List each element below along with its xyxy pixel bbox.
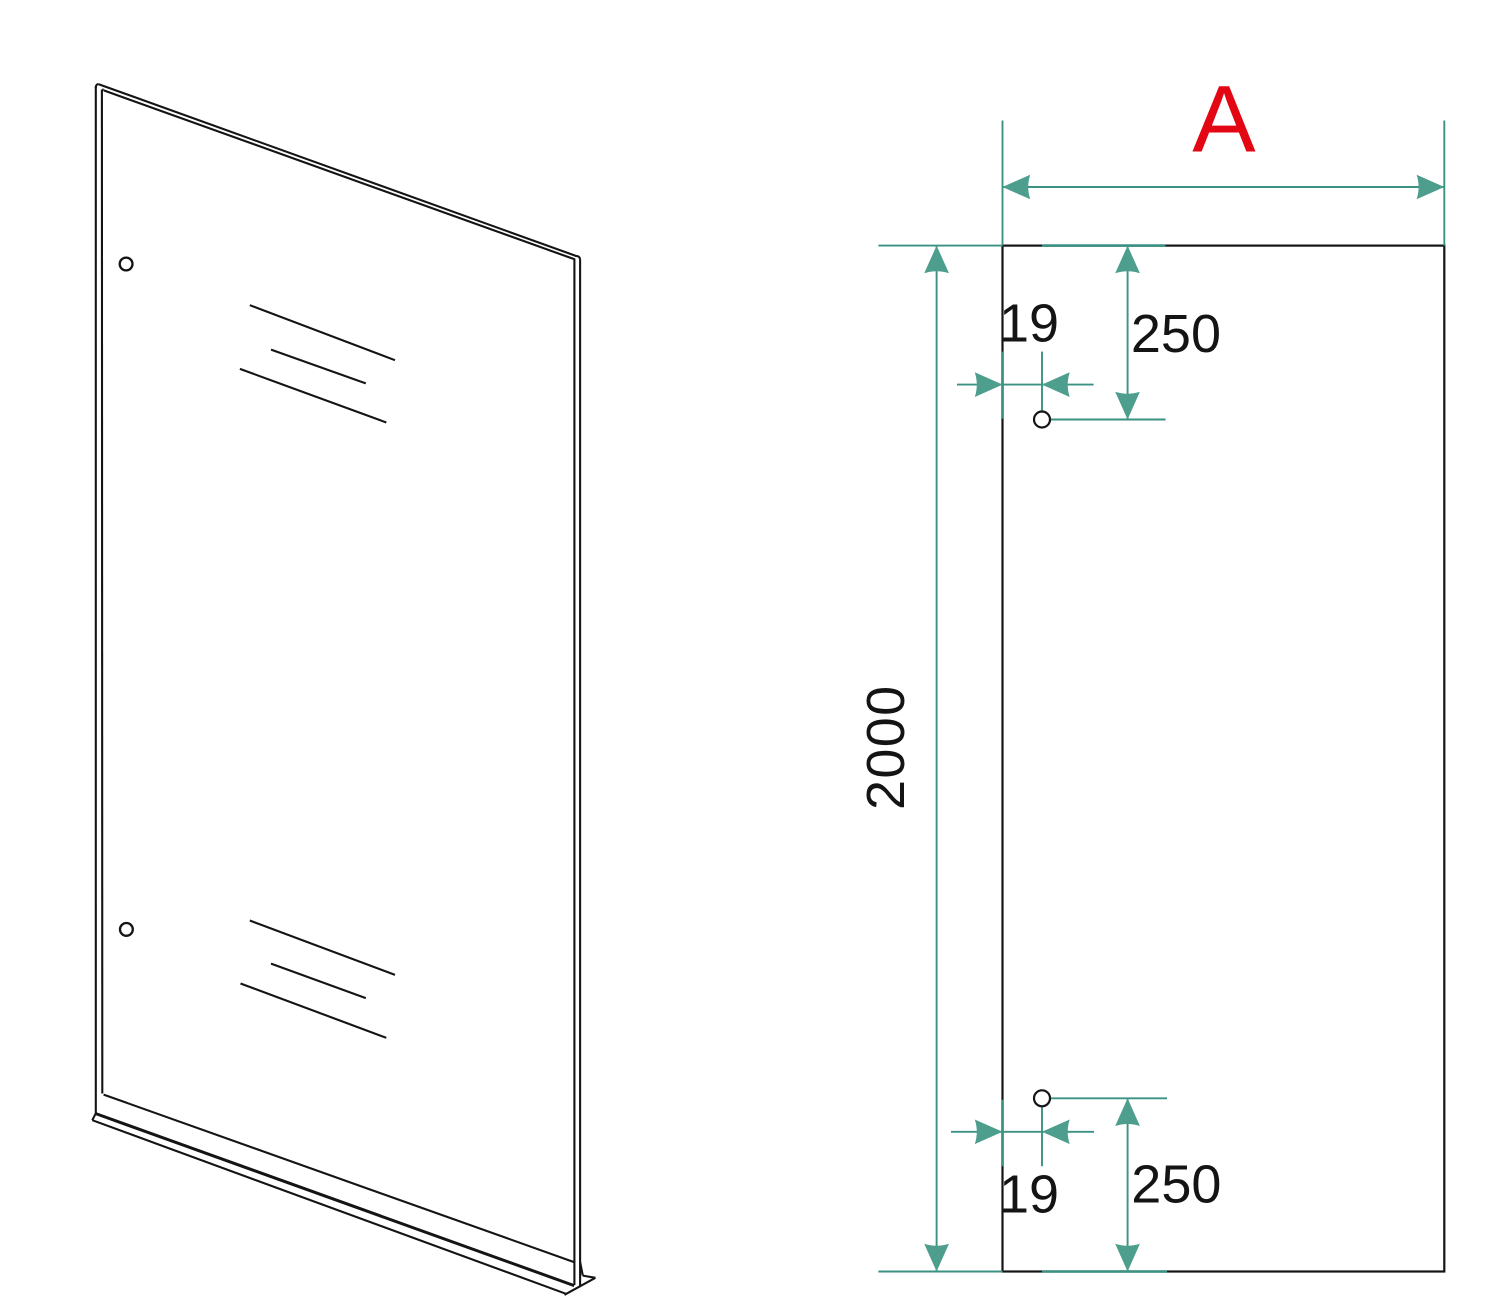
svg-text:250: 250 (1131, 304, 1221, 364)
svg-text:19: 19 (999, 294, 1059, 354)
svg-text:19: 19 (999, 1165, 1059, 1225)
svg-text:2000: 2000 (856, 684, 916, 810)
svg-text:A: A (1192, 67, 1256, 173)
svg-text:250: 250 (1131, 1155, 1221, 1215)
